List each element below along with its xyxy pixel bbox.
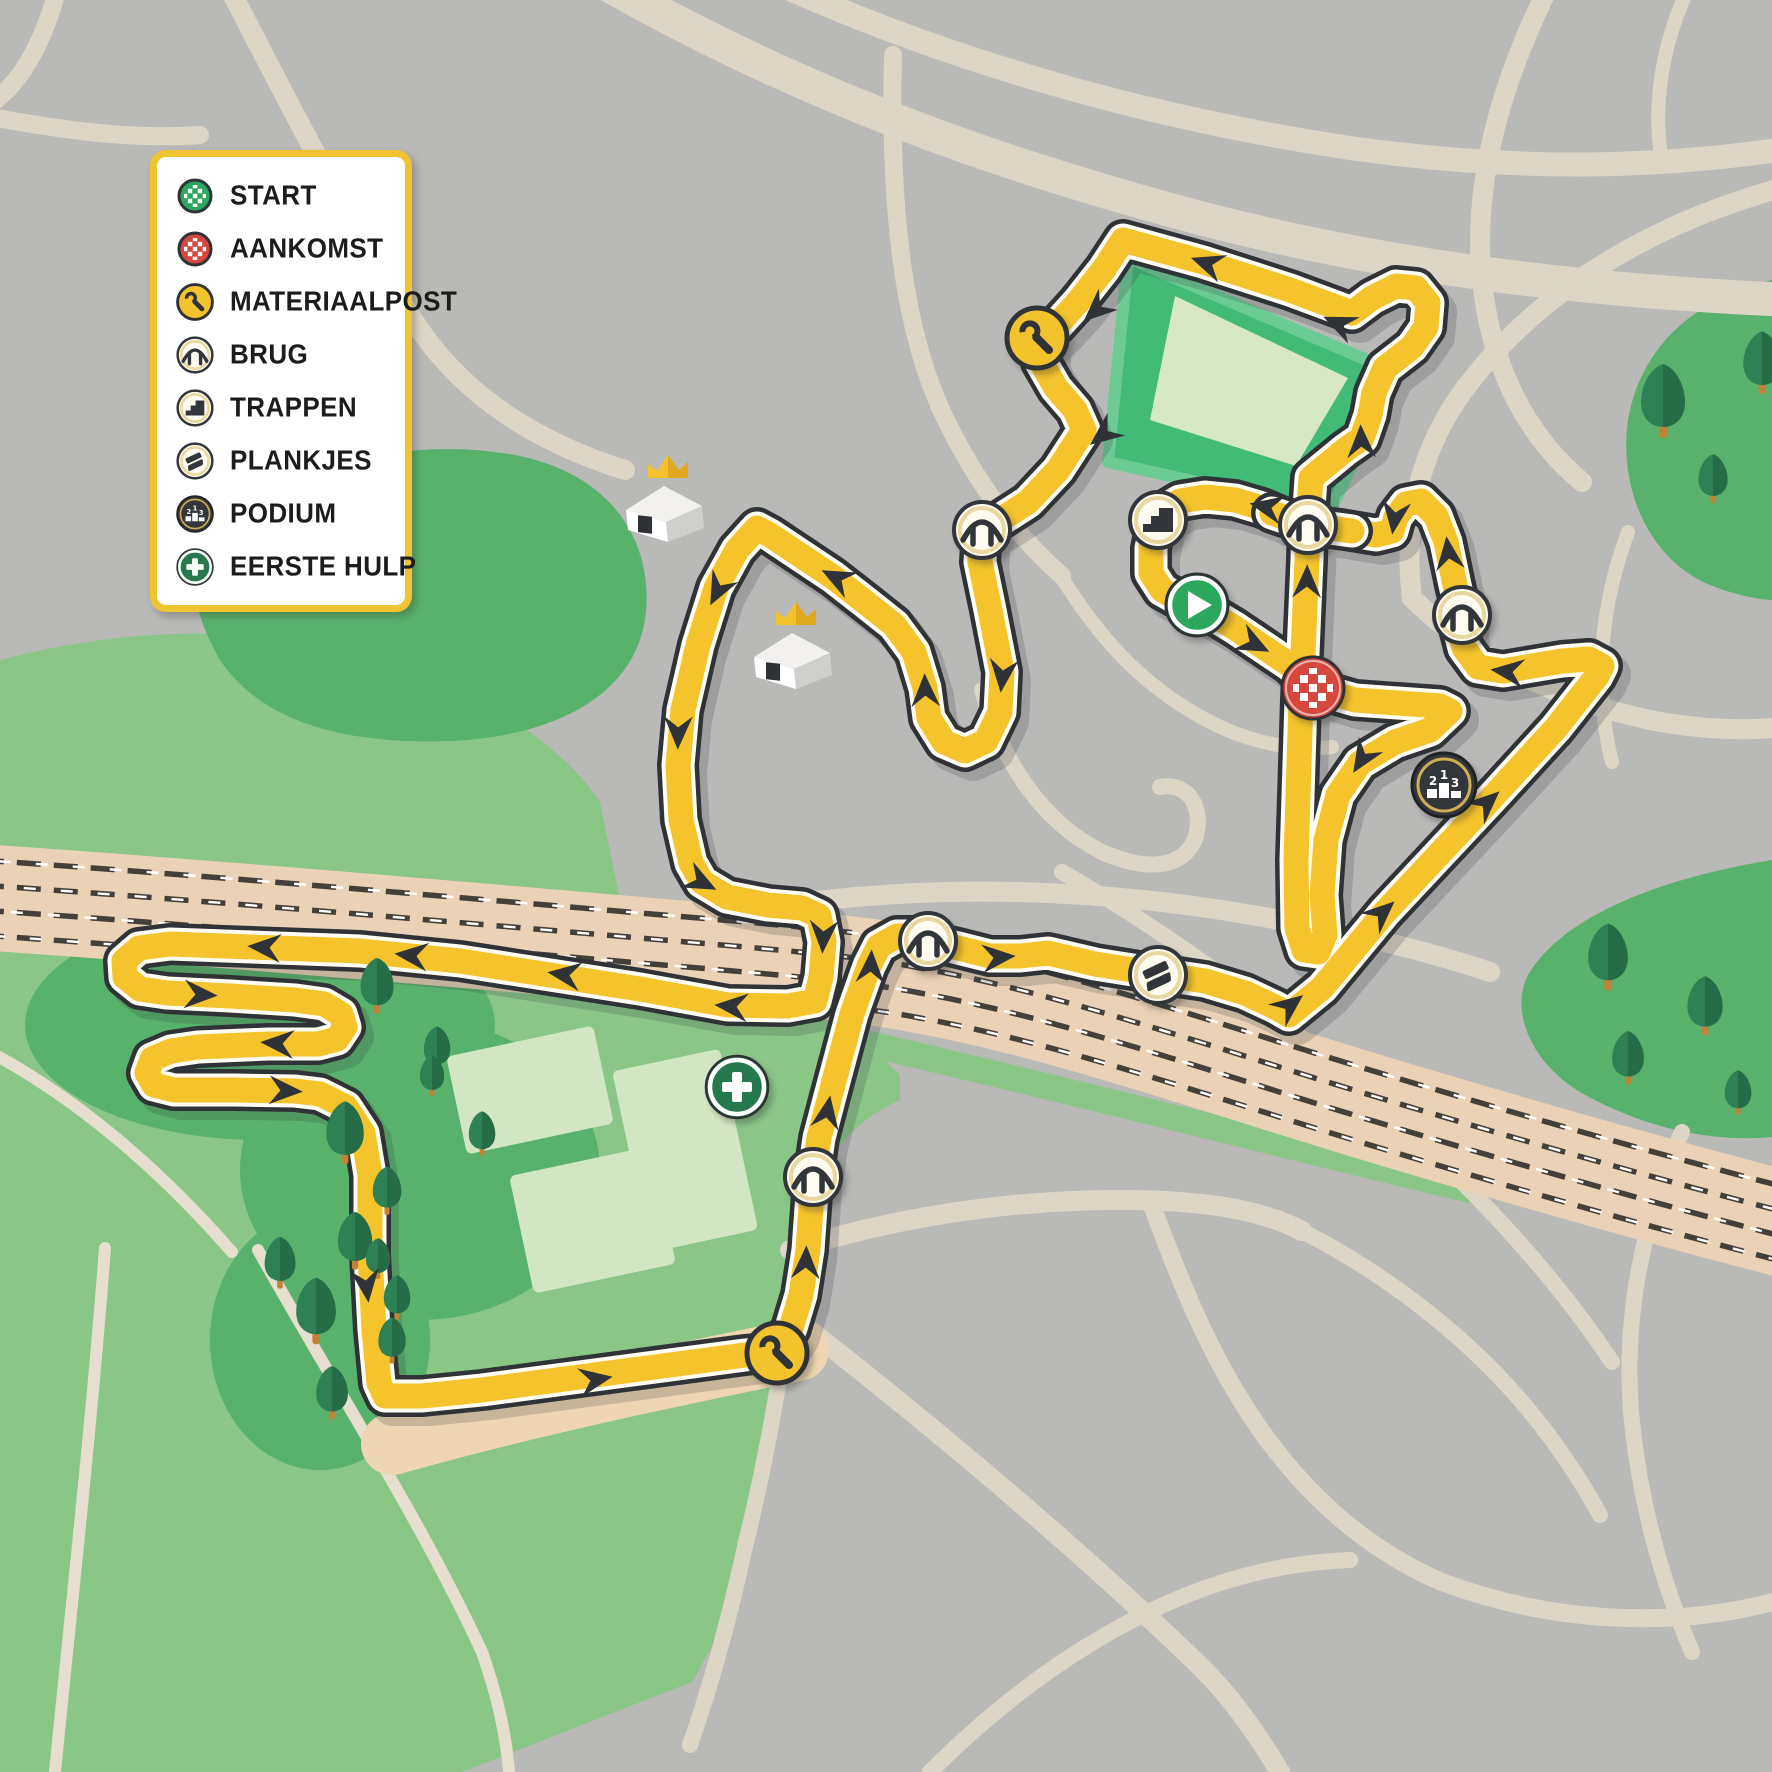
first-aid-icon	[175, 547, 215, 587]
legend-item-trappen: TRAPPEN	[175, 381, 395, 434]
legend-label: PLANKJES	[230, 444, 372, 477]
legend-label: EERSTE HULP	[230, 550, 416, 583]
eerste-hulp-icon	[706, 1056, 768, 1118]
materiaalpost-icon	[1007, 308, 1067, 368]
legend-item-brug: BRUG	[175, 328, 395, 381]
legend-label: TRAPPEN	[230, 391, 357, 424]
materiaalpost-icon	[747, 1323, 807, 1383]
start-icon	[175, 176, 215, 216]
finish-icon	[175, 229, 215, 269]
legend-label: START	[230, 179, 317, 212]
legend-item-eerste-hulp: EERSTE HULP	[175, 540, 395, 593]
legend-label: AANKOMST	[230, 232, 383, 265]
trappen-icon	[1130, 492, 1186, 548]
plankjes-icon	[1130, 947, 1186, 1003]
wrench-icon	[175, 282, 215, 322]
legend-label: BRUG	[230, 338, 308, 371]
legend-item-start: START	[175, 169, 395, 222]
brug-icon	[954, 502, 1010, 558]
brug-icon	[785, 1149, 841, 1205]
podium-icon	[175, 494, 215, 534]
legend-item-aankomst: AANKOMST	[175, 222, 395, 275]
brug-icon	[1280, 497, 1336, 553]
legend-label: PODIUM	[230, 497, 336, 530]
cyclocross-course-map: 2 1 3	[0, 0, 1772, 1772]
legend-item-materiaalpost: MATERIAALPOST	[175, 275, 395, 328]
legend-item-plankjes: PLANKJES	[175, 434, 395, 487]
planks-icon	[175, 441, 215, 481]
bridge-icon	[175, 335, 215, 375]
stairs-icon	[175, 388, 215, 428]
legend-label: MATERIAALPOST	[230, 285, 457, 318]
legend: START AANKOMST MATERIAALPOST BRUG TRAPPE…	[150, 150, 412, 612]
brug-icon	[1434, 587, 1490, 643]
aankomst-icon	[1282, 657, 1344, 719]
podium-icon	[1412, 753, 1476, 817]
legend-item-podium: PODIUM	[175, 487, 395, 540]
brug-icon	[900, 913, 956, 969]
start-icon	[1166, 574, 1228, 636]
